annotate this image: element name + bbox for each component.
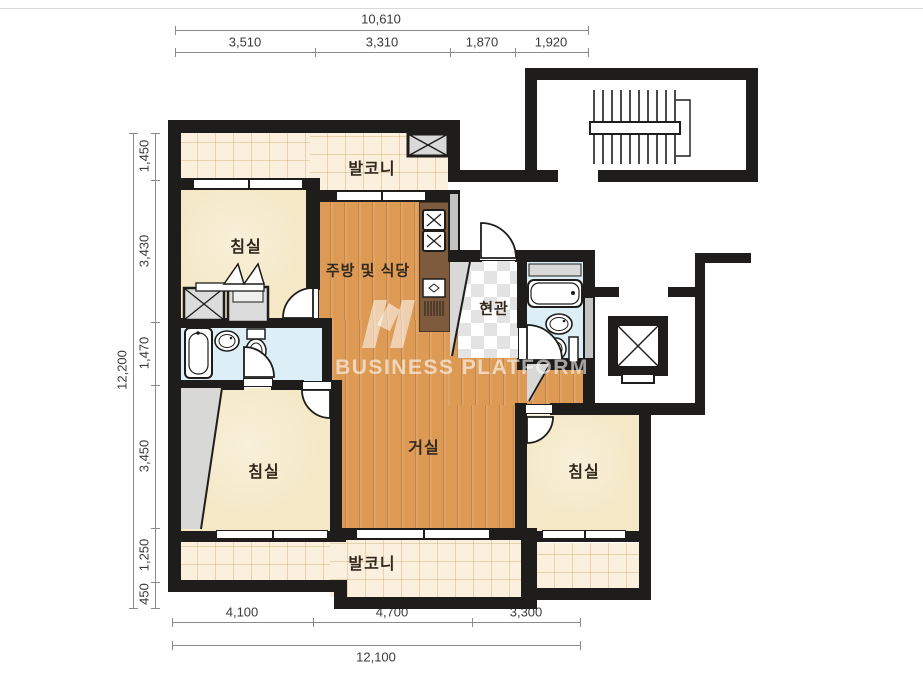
room-label-bedroom-bottom-left: 침실 — [248, 458, 279, 482]
floor-plan-canvas: 10,610 3,510 3,310 1,870 1,920 12,200 1,… — [0, 0, 923, 676]
room-label-bedroom-right: 침실 — [568, 458, 599, 482]
stove-icon — [423, 210, 445, 251]
room-label-living: 거실 — [408, 434, 439, 458]
watermark-text: BUSINESS PLATFORM — [335, 356, 589, 380]
fixtures-overlay — [0, 0, 923, 676]
bifold-door-icon — [196, 264, 264, 291]
sink-icon — [546, 314, 572, 334]
watermark-logo — [362, 300, 415, 348]
closet-wedge — [181, 388, 222, 529]
wardrobe-icon — [184, 288, 224, 320]
room-label-bedroom-top-left: 침실 — [230, 233, 261, 257]
bathtub-icon — [185, 328, 212, 378]
balcony-unit-box-icon — [408, 134, 448, 156]
room-label-kitchen: 주방 및 식당 — [326, 260, 410, 281]
sink-icon — [215, 331, 239, 351]
elevator-icon — [618, 326, 658, 383]
kitchen-sink-icon — [423, 279, 445, 316]
room-label-balcony-bottom: 발코니 — [348, 550, 395, 574]
bathtub-icon — [528, 280, 582, 307]
room-label-balcony-top: 발코니 — [348, 155, 395, 179]
vent-shelf — [529, 264, 581, 276]
room-label-entrance: 현관 — [479, 298, 509, 319]
cabinet-icon — [228, 287, 268, 322]
stairs-icon — [590, 90, 690, 164]
shoe-closet-wedge — [450, 262, 470, 356]
